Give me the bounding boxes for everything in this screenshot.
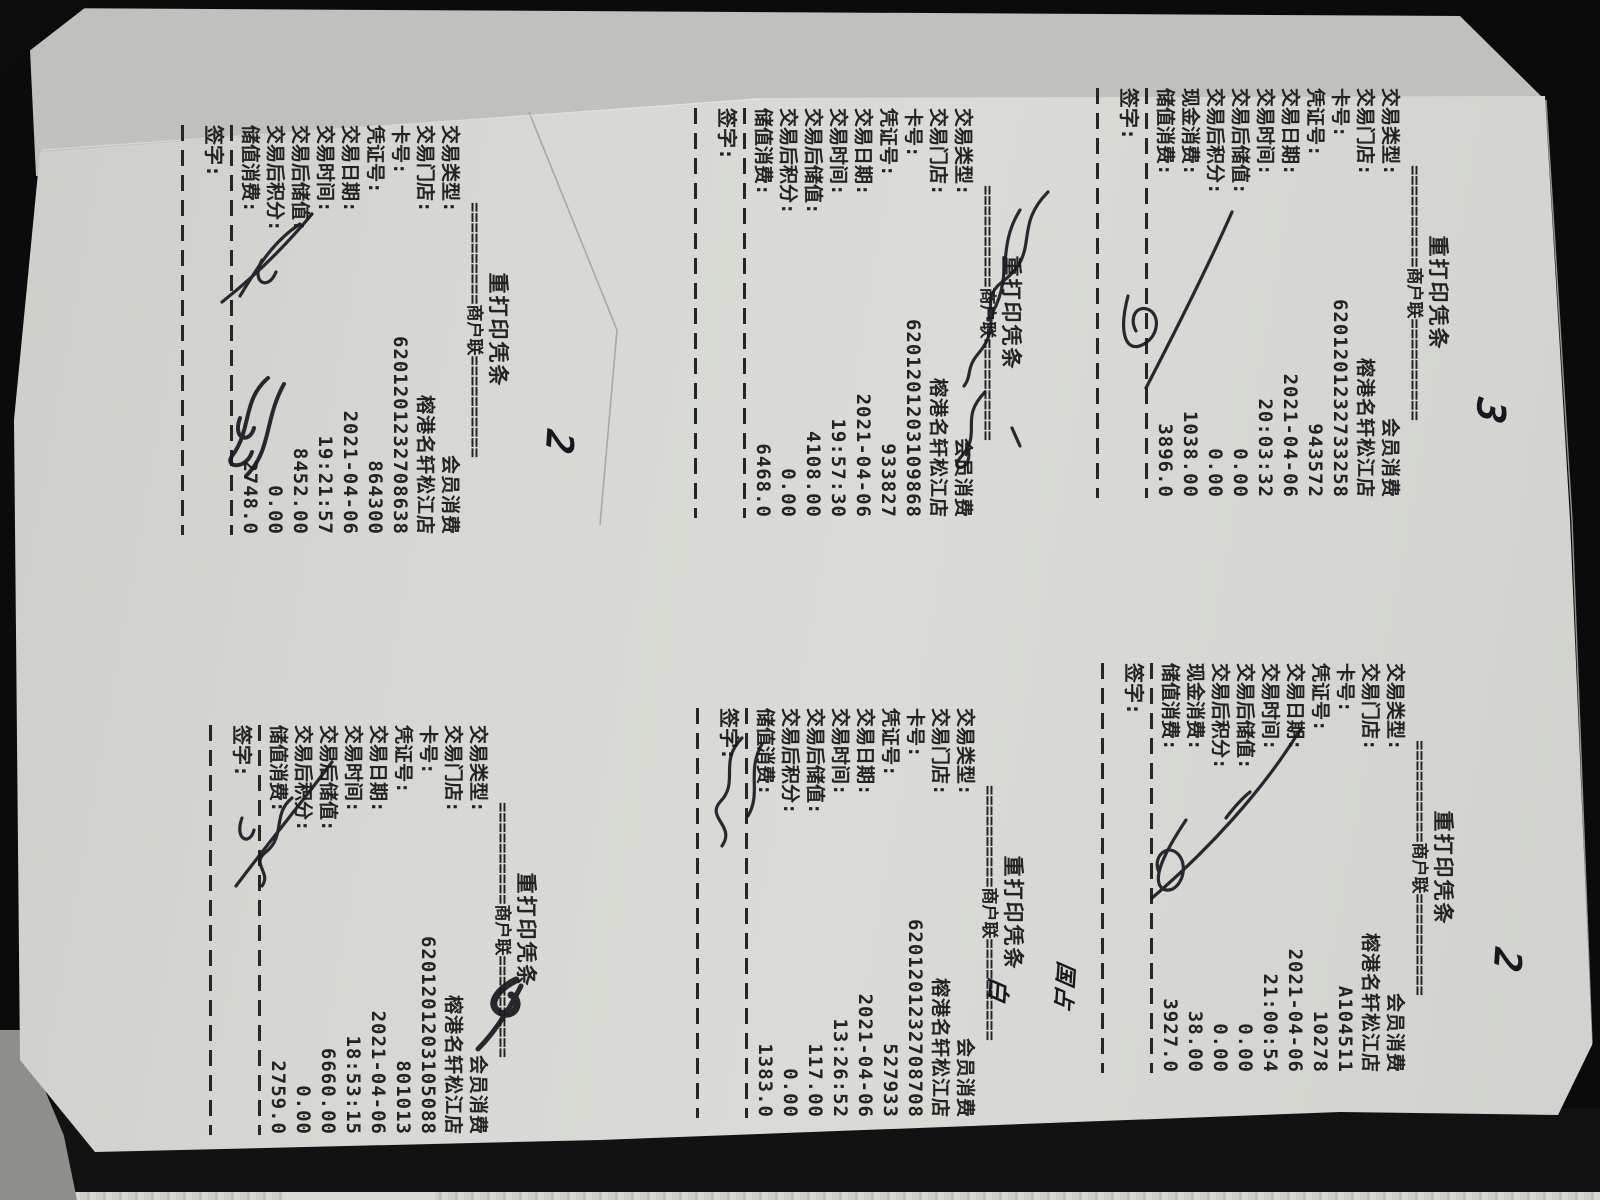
field-label: 储值消费: <box>237 125 262 212</box>
receipt-field-row: 交易门店:榕港名轩松江店 <box>1357 663 1382 1073</box>
receipt-copy-line: ==========商户联========== <box>1402 88 1425 498</box>
receipt-title: 重打印凭条 <box>1000 708 1026 1118</box>
field-value: 6201201232733258 <box>1327 299 1352 498</box>
field-value: 6660.00 <box>315 1048 340 1135</box>
field-label: 交易后积分: <box>775 108 800 214</box>
dashed-separator <box>258 725 261 1135</box>
dashed-separator <box>694 108 697 518</box>
field-value: 2759.0 <box>265 1060 290 1135</box>
field-label: 交易门店: <box>925 108 950 195</box>
receipt-field-row: 交易后积分:0.00 <box>775 108 800 518</box>
field-value: 1038.00 <box>1177 411 1202 498</box>
field-value: 38.00 <box>1182 1011 1207 1073</box>
field-label: 交易后储值: <box>1227 88 1252 194</box>
receipt-field-row: 交易后储值:0.00 <box>1232 663 1257 1073</box>
field-label: 凭证号: <box>877 708 902 776</box>
receipt-copy-line: ==========商户联========== <box>462 125 485 535</box>
field-value: 0.00 <box>1207 1023 1232 1073</box>
receipt-top-left: 重打印凭条 ==========商户联========== 交易类型:会员消费交… <box>179 125 511 535</box>
field-label: 现金消费: <box>1182 663 1207 750</box>
receipt-field-row: 储值消费:3896.0 <box>1152 88 1177 498</box>
field-value: 榕港名轩松江店 <box>440 995 465 1135</box>
receipt-title: 重打印凭条 <box>513 725 539 1135</box>
receipt-bottom-left: 重打印凭条 ==========商户联========== 交易类型:会员消费交… <box>207 725 539 1135</box>
field-value: 0.00 <box>775 468 800 518</box>
field-value: 20:03:32 <box>1252 398 1277 498</box>
field-value: 0.00 <box>1227 448 1252 498</box>
field-label: 交易后储值: <box>287 125 312 231</box>
receipt-field-row: 交易时间:21:00:54 <box>1257 663 1282 1073</box>
field-value: 6201201203105088 <box>415 936 440 1135</box>
field-label: 交易后积分: <box>1207 663 1232 769</box>
field-label: 交易门店: <box>440 725 465 812</box>
field-value: 4108.00 <box>800 431 825 518</box>
field-label: 交易类型: <box>1377 88 1402 175</box>
receipt-field-row: 储值消费:2759.0 <box>265 725 290 1135</box>
field-value: 2748.0 <box>237 460 262 535</box>
receipt-field-row: 交易日期:2021-04-06 <box>850 108 875 518</box>
field-label: 交易日期: <box>852 708 877 795</box>
field-value: 13:26:52 <box>827 1018 852 1118</box>
field-label: 凭证号: <box>875 108 900 176</box>
signature-area: 签字: <box>188 125 228 535</box>
field-value: 会员消费 <box>952 1038 977 1118</box>
receipt-field-row: 卡号:6201201232708638 <box>387 125 412 535</box>
receipt-field-row: 交易类型:会员消费 <box>465 725 490 1135</box>
receipt-bottom-right: 重打印凭条 ==========商户联========== 交易类型:会员消费交… <box>1098 663 1456 1073</box>
receipt-copy-line: ==========商户联========== <box>490 725 513 1135</box>
signature-label: 签字: <box>717 708 741 760</box>
field-label: 交易类型: <box>437 125 462 212</box>
receipt-fields: 交易类型:会员消费交易门店:榕港名轩松江店卡号:6201201232708708… <box>752 708 977 1118</box>
receipt-field-row: 交易门店:榕港名轩松江店 <box>927 708 952 1118</box>
signature-area: 签字: <box>1108 663 1148 1073</box>
dashed-separator <box>1145 88 1148 498</box>
dashed-separator <box>1096 88 1099 498</box>
signature-area: 签字: <box>701 108 741 518</box>
receipt-fields: 交易类型:会员消费交易门店:榕港名轩松江店卡号:6201201203109868… <box>750 108 975 518</box>
receipt-field-row: 现金消费:1038.00 <box>1177 88 1202 498</box>
field-label: 交易时间: <box>1252 88 1277 175</box>
receipt-title: 重打印凭条 <box>998 108 1024 518</box>
field-value: 2021-04-06 <box>1277 374 1302 498</box>
field-label: 储值消费: <box>750 108 775 195</box>
receipt-field-row: 交易后储值:8452.00 <box>287 125 312 535</box>
field-value: 2021-04-06 <box>852 994 877 1118</box>
dashed-separator <box>745 708 748 1118</box>
field-label: 凭证号: <box>390 725 415 793</box>
receipt-field-row: 交易门店:榕港名轩松江店 <box>1352 88 1377 498</box>
receipt-field-row: 储值消费:6468.0 <box>750 108 775 518</box>
field-value: 榕港名轩松江店 <box>1352 358 1377 498</box>
field-label: 储值消费: <box>1157 663 1182 750</box>
receipt-field-row: 储值消费:3927.0 <box>1157 663 1182 1073</box>
field-value: 8452.00 <box>287 448 312 535</box>
field-label: 现金消费: <box>1177 88 1202 175</box>
field-value: 527933 <box>877 1043 902 1118</box>
field-value: 0.00 <box>1232 1023 1257 1073</box>
field-value: 会员消费 <box>950 438 975 518</box>
field-label: 交易类型: <box>1382 663 1407 750</box>
field-label: 交易类型: <box>950 108 975 195</box>
receipt-title: 重打印凭条 <box>1425 88 1451 498</box>
dashed-separator <box>209 725 212 1135</box>
field-value: 2021-04-06 <box>1282 949 1307 1073</box>
field-value: 会员消费 <box>437 455 462 535</box>
field-value: 19:21:57 <box>312 435 337 535</box>
field-value: 会员消费 <box>1382 993 1407 1073</box>
field-value: 3896.0 <box>1152 423 1177 498</box>
field-label: 卡号: <box>900 108 925 157</box>
receipt-copy-line: ==========商户联========== <box>975 108 998 518</box>
field-value: 6201201203109868 <box>900 319 925 518</box>
field-label: 交易日期: <box>365 725 390 812</box>
field-value: 6468.0 <box>750 443 775 518</box>
field-label: 交易后储值: <box>800 108 825 214</box>
receipt-field-row: 交易后储值:0.00 <box>1227 88 1252 498</box>
field-label: 交易后积分: <box>777 708 802 814</box>
field-value: A104511 <box>1332 986 1357 1073</box>
field-label: 交易时间: <box>312 125 337 212</box>
field-value: 榕港名轩松江店 <box>925 378 950 518</box>
field-value: 18:53:15 <box>340 1035 365 1135</box>
field-label: 储值消费: <box>1152 88 1177 175</box>
receipt-top-right: 重打印凭条 ==========商户联========== 交易类型:会员消费交… <box>1093 88 1451 498</box>
receipt-field-row: 卡号:6201201232708708 <box>902 708 927 1118</box>
field-label: 凭证号: <box>1302 88 1327 156</box>
receipt-field-row: 交易后储值:6660.00 <box>315 725 340 1135</box>
field-label: 交易后积分: <box>262 125 287 231</box>
field-value: 2021-04-06 <box>850 394 875 518</box>
receipt-field-row: 交易后积分:0.00 <box>290 725 315 1135</box>
field-value: 3927.0 <box>1157 998 1182 1073</box>
field-value: 榕港名轩松江店 <box>927 978 952 1118</box>
receipt-field-row: 交易日期:2021-04-06 <box>852 708 877 1118</box>
receipt-field-row: 交易门店:榕港名轩松江店 <box>440 725 465 1135</box>
field-value: 19:57:30 <box>825 418 850 518</box>
field-value: 0.00 <box>290 1085 315 1135</box>
field-value: 榕港名轩松江店 <box>1357 933 1382 1073</box>
field-label: 交易门店: <box>1357 663 1382 750</box>
field-label: 交易门店: <box>412 125 437 212</box>
receipt-copy-line: ==========商户联========== <box>1407 663 1430 1073</box>
receipt-field-row: 交易类型:会员消费 <box>437 125 462 535</box>
field-value: 10278 <box>1307 1011 1332 1073</box>
signature-area: 签字: <box>703 708 743 1118</box>
field-label: 储值消费: <box>265 725 290 812</box>
receipt-fields: 交易类型:会员消费交易门店:榕港名轩松江店卡号:6201201232733258… <box>1152 88 1402 498</box>
receipt-field-row: 储值消费:2748.0 <box>237 125 262 535</box>
field-label: 交易后积分: <box>1202 88 1227 194</box>
field-value: 会员消费 <box>465 1055 490 1135</box>
receipt-field-row: 交易时间:19:57:30 <box>825 108 850 518</box>
signature-label: 签字: <box>1122 663 1146 715</box>
field-value: 6201201232708638 <box>387 336 412 535</box>
field-label: 交易日期: <box>1282 663 1307 750</box>
receipt-field-row: 凭证号:527933 <box>877 708 902 1118</box>
field-label: 交易时间: <box>825 108 850 195</box>
dashed-separator <box>743 108 746 518</box>
receipt-fields: 交易类型:会员消费交易门店:榕港名轩松江店卡号:A104511凭证号:10278… <box>1157 663 1407 1073</box>
field-value: 榕港名轩松江店 <box>412 395 437 535</box>
field-label: 卡号: <box>415 725 440 774</box>
field-value: 1383.0 <box>752 1043 777 1118</box>
dashed-separator <box>181 125 184 535</box>
receipt-field-row: 交易时间:18:53:15 <box>340 725 365 1135</box>
receipt-field-row: 现金消费:38.00 <box>1182 663 1207 1073</box>
field-value: 21:00:54 <box>1257 973 1282 1073</box>
receipt-field-row: 卡号:6201201232733258 <box>1327 88 1352 498</box>
receipt-field-row: 交易时间:13:26:52 <box>827 708 852 1118</box>
receipt-field-row: 交易日期:2021-04-06 <box>337 125 362 535</box>
field-value: 6201201232708708 <box>902 919 927 1118</box>
receipt-field-row: 交易时间:20:03:32 <box>1252 88 1277 498</box>
receipt-title: 重打印凭条 <box>485 125 511 535</box>
field-label: 卡号: <box>1332 663 1357 712</box>
receipt-fields: 交易类型:会员消费交易门店:榕港名轩松江店卡号:6201201232708638… <box>237 125 462 535</box>
receipt-field-row: 交易门店:榕港名轩松江店 <box>925 108 950 518</box>
receipt-field-row: 交易门店:榕港名轩松江店 <box>412 125 437 535</box>
signature-area: 签字: <box>216 725 256 1135</box>
receipt-field-row: 储值消费:1383.0 <box>752 708 777 1118</box>
field-label: 卡号: <box>387 125 412 174</box>
signature-label: 签字: <box>230 725 254 777</box>
receipt-field-row: 交易类型:会员消费 <box>952 708 977 1118</box>
signature-label: 签字: <box>202 125 226 177</box>
receipt-field-row: 交易日期:2021-04-06 <box>1282 663 1307 1073</box>
signature-area: 签字: <box>1103 88 1143 498</box>
field-label: 交易类型: <box>952 708 977 795</box>
receipt-field-row: 交易后积分:0.00 <box>1207 663 1232 1073</box>
receipt-field-row: 凭证号:933827 <box>875 108 900 518</box>
receipt-field-row: 交易时间:19:21:57 <box>312 125 337 535</box>
field-label: 交易日期: <box>850 108 875 195</box>
field-label: 交易时间: <box>340 725 365 812</box>
receipt-field-row: 交易日期:2021-04-06 <box>365 725 390 1135</box>
field-label: 交易后积分: <box>290 725 315 831</box>
receipt-field-row: 交易后储值:117.00 <box>802 708 827 1118</box>
receipt-bottom-middle: 重打印凭条 ==========商户联========== 交易类型:会员消费交… <box>694 708 1026 1118</box>
field-label: 交易时间: <box>1257 663 1282 750</box>
receipt-field-row: 凭证号:864300 <box>362 125 387 535</box>
receipt-field-row: 交易类型:会员消费 <box>1377 88 1402 498</box>
receipt-field-row: 凭证号:943572 <box>1302 88 1327 498</box>
receipt-field-row: 凭证号:10278 <box>1307 663 1332 1073</box>
field-label: 交易后储值: <box>802 708 827 814</box>
photo-scene: 重打印凭条 ==========商户联========== 交易类型:会员消费交… <box>0 0 1600 1200</box>
field-label: 交易后储值: <box>315 725 340 831</box>
field-label: 交易类型: <box>465 725 490 812</box>
field-label: 卡号: <box>1327 88 1352 137</box>
receipt-fields: 交易类型:会员消费交易门店:榕港名轩松江店卡号:6201201203105088… <box>265 725 490 1135</box>
signature-label: 签字: <box>715 108 739 160</box>
field-value: 933827 <box>875 443 900 518</box>
handwritten-note: 国占 <box>1048 959 1083 1012</box>
receipt-copy-line: ==========商户联========== <box>977 708 1000 1118</box>
receipt-field-row: 交易类型:会员消费 <box>950 108 975 518</box>
receipt-top-middle: 重打印凭条 ==========商户联========== 交易类型:会员消费交… <box>692 108 1024 518</box>
receipt-field-row: 交易后积分:0.00 <box>777 708 802 1118</box>
field-label: 交易日期: <box>337 125 362 212</box>
field-label: 交易门店: <box>927 708 952 795</box>
field-value: 0.00 <box>777 1068 802 1118</box>
field-label: 交易门店: <box>1352 88 1377 175</box>
dashed-separator <box>1101 663 1104 1073</box>
dashed-separator <box>230 125 233 535</box>
field-value: 会员消费 <box>1377 418 1402 498</box>
receipt-field-row: 卡号:6201201203109868 <box>900 108 925 518</box>
field-value: 801013 <box>390 1060 415 1135</box>
field-value: 0.00 <box>1202 448 1227 498</box>
dashed-separator <box>1150 663 1153 1073</box>
field-label: 卡号: <box>902 708 927 757</box>
field-label: 交易后储值: <box>1232 663 1257 769</box>
receipt-field-row: 卡号:6201201203105088 <box>415 725 440 1135</box>
field-label: 储值消费: <box>752 708 777 795</box>
field-value: 117.00 <box>802 1043 827 1118</box>
field-label: 凭证号: <box>362 125 387 193</box>
field-label: 交易日期: <box>1277 88 1302 175</box>
receipt-field-row: 凭证号:801013 <box>390 725 415 1135</box>
field-label: 凭证号: <box>1307 663 1332 731</box>
field-value: 2021-04-06 <box>365 1011 390 1135</box>
receipt-field-row: 交易后积分:0.00 <box>1202 88 1227 498</box>
field-value: 864300 <box>362 460 387 535</box>
field-value: 943572 <box>1302 423 1327 498</box>
receipt-field-row: 卡号:A104511 <box>1332 663 1357 1073</box>
receipt-field-row: 交易后储值:4108.00 <box>800 108 825 518</box>
receipt-field-row: 交易日期:2021-04-06 <box>1277 88 1302 498</box>
field-value: 0.00 <box>262 485 287 535</box>
signature-label: 签字: <box>1117 88 1141 140</box>
receipt-title: 重打印凭条 <box>1430 663 1456 1073</box>
dashed-separator <box>696 708 699 1118</box>
field-label: 交易时间: <box>827 708 852 795</box>
receipt-field-row: 交易类型:会员消费 <box>1382 663 1407 1073</box>
receipt-field-row: 交易后积分:0.00 <box>262 125 287 535</box>
field-value: 2021-04-06 <box>337 411 362 535</box>
